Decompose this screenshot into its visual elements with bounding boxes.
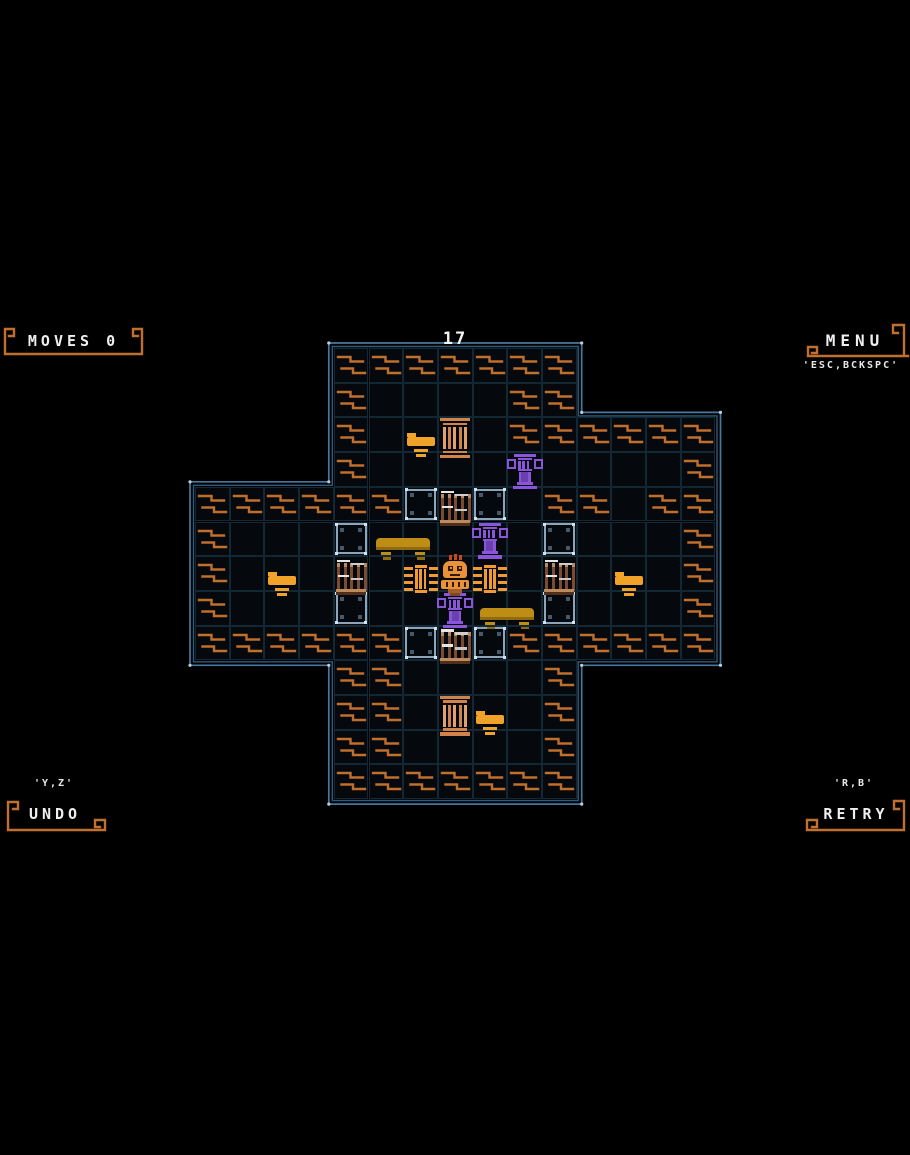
- floor-tile: [542, 452, 577, 487]
- wave-tile: [507, 348, 542, 383]
- wave-tile: [195, 591, 230, 626]
- floor-tile: [369, 417, 404, 452]
- gate: [440, 627, 470, 664]
- gate: [336, 558, 366, 595]
- floor-tile: [473, 383, 508, 418]
- goal-square: [474, 627, 505, 658]
- floor-tile: [646, 591, 681, 626]
- floor-tile: [403, 730, 438, 765]
- wave-tile: [577, 417, 612, 452]
- wave-tile: [334, 487, 369, 522]
- wave-tile: [681, 591, 716, 626]
- table: [476, 711, 504, 737]
- wave-tile: [369, 487, 404, 522]
- retry-keys-hint: 'R,B': [804, 778, 904, 789]
- wave-tile: [681, 626, 716, 661]
- floor-tile: [646, 522, 681, 557]
- wave-tile: [334, 660, 369, 695]
- wave-tile: [473, 764, 508, 799]
- wave-tile: [369, 730, 404, 765]
- wave-tile: [438, 764, 473, 799]
- wave-tile: [334, 764, 369, 799]
- wave-tile: [369, 764, 404, 799]
- wave-tile: [646, 626, 681, 661]
- wave-tile: [369, 660, 404, 695]
- table: [407, 433, 435, 459]
- player-statue: [441, 554, 469, 596]
- wave-tile: [577, 487, 612, 522]
- goal-square: [405, 627, 436, 658]
- wave-tile: [646, 487, 681, 522]
- wave-tile: [542, 764, 577, 799]
- wave-tile: [473, 348, 508, 383]
- wave-tile: [542, 348, 577, 383]
- goal-square: [474, 489, 505, 520]
- floor-tile: [230, 591, 265, 626]
- undo-keys-hint: 'Y,Z': [4, 778, 104, 789]
- floor-tile: [369, 591, 404, 626]
- wave-tile: [507, 764, 542, 799]
- wave-tile: [611, 417, 646, 452]
- bench: [376, 538, 430, 562]
- wave-tile: [334, 730, 369, 765]
- floor-tile: [403, 660, 438, 695]
- wave-tile: [542, 383, 577, 418]
- wave-tile: [369, 348, 404, 383]
- floor-tile: [403, 591, 438, 626]
- floor-tile: [507, 660, 542, 695]
- floor-tile: [299, 522, 334, 557]
- floor-tile: [299, 591, 334, 626]
- gate: [544, 558, 574, 595]
- floor-tile: [577, 556, 612, 591]
- floor-tile: [577, 522, 612, 557]
- floor-tile: [611, 487, 646, 522]
- wave-tile: [646, 417, 681, 452]
- game-screen: MOVES 0 17 MENU 'ESC,BCKSPC' 'Y,Z' UNDO …: [0, 0, 910, 1155]
- orange-fence: [404, 565, 438, 593]
- floor-tile: [403, 383, 438, 418]
- wave-tile: [195, 487, 230, 522]
- purple-pillar: [507, 454, 543, 492]
- wave-tile: [195, 522, 230, 557]
- wave-tile: [264, 487, 299, 522]
- floor-tile: [230, 556, 265, 591]
- goal-square: [336, 593, 367, 624]
- goal-square: [544, 523, 575, 554]
- retry-label: RETRY: [803, 805, 909, 823]
- floor-tile: [646, 556, 681, 591]
- floor-tile: [507, 730, 542, 765]
- wave-tile: [542, 695, 577, 730]
- floor-tile: [369, 452, 404, 487]
- table: [268, 572, 296, 598]
- floor-tile: [507, 695, 542, 730]
- floor-tile: [230, 522, 265, 557]
- orange-pillar: [440, 696, 470, 737]
- wave-tile: [334, 452, 369, 487]
- wave-tile: [542, 730, 577, 765]
- floor-tile: [438, 383, 473, 418]
- wave-tile: [369, 626, 404, 661]
- purple-pillar: [437, 593, 473, 631]
- wave-tile: [334, 417, 369, 452]
- floor-tile: [646, 452, 681, 487]
- wave-tile: [542, 626, 577, 661]
- moves-counter: MOVES 0: [2, 325, 145, 357]
- goal-square: [405, 489, 436, 520]
- bench: [480, 608, 534, 632]
- gate: [440, 489, 470, 526]
- floor-tile: [299, 556, 334, 591]
- wave-tile: [507, 417, 542, 452]
- game-board: [0, 0, 910, 1155]
- moves-label: MOVES 0: [2, 332, 145, 350]
- wave-tile: [195, 626, 230, 661]
- purple-pillar: [472, 523, 508, 561]
- wave-tile: [230, 626, 265, 661]
- wave-tile: [542, 487, 577, 522]
- wave-tile: [507, 383, 542, 418]
- floor-tile: [473, 417, 508, 452]
- wave-tile: [334, 695, 369, 730]
- wave-tile: [542, 660, 577, 695]
- floor-tile: [369, 383, 404, 418]
- menu-keys-hint: 'ESC,BCKSPC': [795, 360, 907, 371]
- floor-tile: [611, 522, 646, 557]
- orange-fence: [473, 565, 507, 593]
- wave-tile: [299, 626, 334, 661]
- wave-tile: [334, 383, 369, 418]
- goal-square: [544, 593, 575, 624]
- wave-tile: [681, 556, 716, 591]
- wave-tile: [264, 626, 299, 661]
- table: [615, 572, 643, 598]
- wave-tile: [438, 348, 473, 383]
- wave-tile: [681, 487, 716, 522]
- wave-tile: [611, 626, 646, 661]
- floor-tile: [473, 660, 508, 695]
- wave-tile: [681, 452, 716, 487]
- wave-tile: [369, 695, 404, 730]
- orange-pillar: [440, 418, 470, 459]
- floor-tile: [507, 487, 542, 522]
- retry-button[interactable]: RETRY: [803, 795, 909, 835]
- floor-tile: [577, 452, 612, 487]
- wave-tile: [681, 522, 716, 557]
- menu-label: MENU: [800, 331, 910, 350]
- floor-tile: [438, 522, 473, 557]
- wave-tile: [334, 348, 369, 383]
- floor-tile: [438, 660, 473, 695]
- floor-tile: [403, 695, 438, 730]
- floor-tile: [507, 522, 542, 557]
- level-number: 17: [405, 329, 505, 349]
- undo-label: UNDO: [3, 805, 107, 823]
- menu-button[interactable]: MENU: [800, 320, 910, 360]
- wave-tile: [299, 487, 334, 522]
- wave-tile: [577, 626, 612, 661]
- wave-tile: [195, 556, 230, 591]
- wave-tile: [542, 417, 577, 452]
- floor-tile: [473, 452, 508, 487]
- wave-tile: [403, 348, 438, 383]
- floor-tile: [264, 522, 299, 557]
- goal-square: [336, 523, 367, 554]
- wave-tile: [230, 487, 265, 522]
- wave-tile: [403, 764, 438, 799]
- wave-tile: [681, 417, 716, 452]
- wave-tile: [334, 626, 369, 661]
- floor-tile: [507, 556, 542, 591]
- undo-button[interactable]: UNDO: [3, 797, 107, 835]
- floor-tile: [611, 452, 646, 487]
- floor-tile: [577, 591, 612, 626]
